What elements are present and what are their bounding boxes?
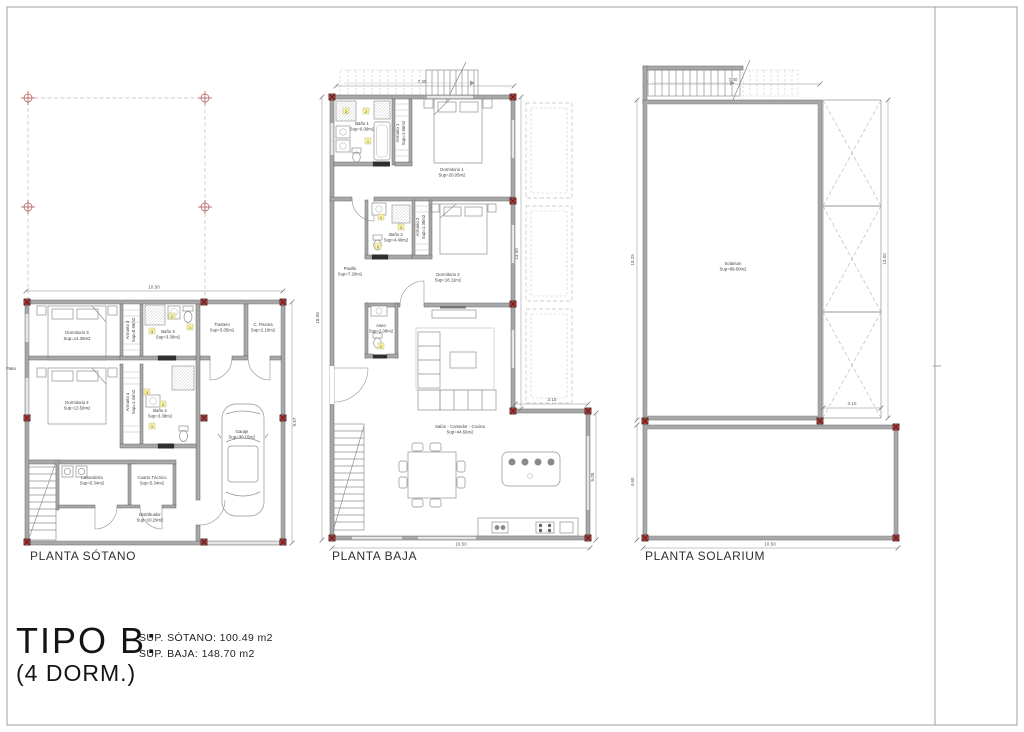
svg-text:10.50: 10.50 [764, 542, 776, 547]
pergola-panel [823, 100, 881, 418]
svg-text:2: 2 [365, 110, 367, 114]
dim-solarium-left: 13.25 [630, 98, 639, 423]
svg-text:13.25: 13.25 [630, 254, 635, 266]
svg-text:3: 3 [345, 110, 347, 114]
fixture-tag: 3 [144, 389, 150, 395]
plan-solarium: 7.40 [630, 60, 900, 550]
svg-text:3: 3 [146, 391, 148, 395]
room-label: Pasillo [344, 266, 357, 271]
room-label: Armario 4 [125, 392, 130, 411]
fixture-tag: 2 [169, 313, 175, 319]
fixture-tag: 1 [378, 214, 384, 220]
fixture-tag: 3 [343, 108, 349, 114]
fixture-tag: 2 [160, 401, 166, 407]
room-label: Baño 4 [153, 408, 167, 413]
svg-text:3.10: 3.10 [848, 401, 857, 406]
room-label: Sup=1.34m2 [131, 389, 136, 414]
column-marker-icon [817, 418, 823, 424]
grid-marker-icon [21, 200, 35, 214]
dim-baja-stair: 7.40 [334, 79, 517, 88]
kitchen-island-icon [502, 452, 560, 486]
dorm-count-label: (4 DORM.) [16, 660, 136, 687]
svg-text:3: 3 [151, 330, 153, 334]
fixture-tag: 1 [365, 138, 371, 144]
svg-text:10.50: 10.50 [148, 285, 160, 290]
plan-baja: 7.40 [315, 62, 598, 550]
svg-text:3: 3 [400, 226, 402, 230]
room-label: Armario 2 [415, 217, 420, 236]
dim-sotano-width: 10.50 [24, 285, 286, 294]
sofa-icon [416, 328, 496, 410]
svg-text:1: 1 [380, 216, 382, 220]
drawing-sheet: 10.50 [0, 0, 1024, 732]
room-label: Armario 3 [125, 320, 130, 339]
svg-text:13.00: 13.00 [514, 248, 519, 260]
svg-text:1: 1 [367, 140, 369, 144]
type-label: TIPO B: [16, 620, 158, 662]
room-label: Lavandería [81, 475, 103, 480]
solarium-walls [643, 66, 822, 420]
column-marker-icon [24, 299, 30, 305]
room-label: Solarium [725, 261, 742, 266]
terrace-walls [643, 425, 898, 540]
svg-text:13.00: 13.00 [882, 253, 887, 265]
room-label: Sup=13.58m2 [64, 406, 91, 411]
svg-text:1: 1 [189, 326, 191, 330]
room-label: Baño 1 [355, 121, 369, 126]
fixture-tag: 3 [398, 224, 404, 230]
plan-title-baja: PLANTA BAJA [332, 549, 417, 563]
room-label: Sup=7.20m2 [338, 272, 363, 277]
dim-solarium-right: 13.00 [882, 98, 890, 421]
room-label: Patio [6, 366, 16, 371]
baja-walls [330, 95, 590, 540]
room-label: Dormitorio 1 [440, 167, 464, 172]
room-labels-baja: Baño 1 Sup=6.09m2 Armario 1 Sup=1.56m2 D… [338, 120, 486, 434]
dim-sotano-height: 9.57 [290, 300, 297, 546]
room-label: Baño 3 [161, 329, 175, 334]
column-marker-icon [510, 408, 516, 414]
kitchen-counter-icon [478, 518, 578, 536]
column-marker-icon [893, 535, 899, 541]
fixture-tag: 2 [363, 108, 369, 114]
room-label: Distribuidor [139, 512, 161, 517]
fixture-tag: 1 [187, 324, 193, 330]
room-label: Dormitorio 3 [65, 330, 89, 335]
sup-sotano-label: SUP. SÓTANO: 100.49 m2 [139, 632, 273, 644]
column-marker-icon [24, 415, 30, 421]
room-label: Sup=5.34m2 [80, 481, 105, 486]
column-marker-icon [329, 94, 335, 100]
column-marker-icon [201, 539, 207, 545]
tv-unit-icon [432, 306, 476, 318]
svg-text:9.57: 9.57 [292, 417, 297, 426]
room-label: Sup=44.66m2 [447, 430, 474, 435]
svg-text:2: 2 [380, 345, 382, 349]
fixture-tag: 2 [375, 243, 381, 249]
column-marker-icon [585, 535, 591, 541]
stairs-icon [334, 424, 364, 530]
room-label: Sup=0.96m2 [131, 317, 136, 342]
bed-icon [431, 204, 496, 254]
svg-text:1: 1 [151, 425, 153, 429]
column-marker-icon [280, 299, 286, 305]
svg-text:18.06: 18.06 [315, 312, 320, 324]
svg-text:2: 2 [377, 245, 379, 249]
plan-title-solarium: PLANTA SOLARIUM [645, 549, 765, 563]
room-label: Dormitorio 4 [65, 400, 89, 405]
svg-text:7.40: 7.40 [729, 77, 738, 82]
baja-doors [334, 199, 424, 402]
sup-baja-label: SUP. BAJA: 148.70 m2 [139, 648, 255, 660]
room-label: Sup=2.08m2 [369, 329, 394, 334]
grid-marker-icon [198, 200, 212, 214]
pergola-projection [526, 103, 572, 403]
room-label: Sup=5.34m2 [140, 481, 165, 486]
svg-text:10.50: 10.50 [455, 542, 467, 547]
dim-baja-right: 13.00 [514, 95, 523, 412]
column-marker-icon [893, 424, 899, 430]
room-label: Sup=1.36m2 [421, 214, 426, 239]
fixture-tag: 1 [149, 423, 155, 429]
column-marker-icon [201, 415, 207, 421]
grid-marker-icon [21, 91, 35, 105]
room-label: Sup=2.19m2 [251, 328, 276, 333]
column-marker-icon [510, 94, 516, 100]
room-label: Sup=1.56m2 [401, 120, 406, 145]
column-marker-icon [329, 535, 335, 541]
svg-text:3.10: 3.10 [548, 397, 557, 402]
room-label: Cuarto Técnico [137, 475, 167, 480]
bed-icon [424, 99, 492, 163]
svg-text:5.05: 5.05 [590, 472, 595, 481]
plan-sotano: 10.50 [6, 91, 297, 545]
column-marker-icon [510, 301, 516, 307]
column-marker-icon [510, 198, 516, 204]
room-label: Sup=4.40m2 [384, 238, 409, 243]
fixture-tag: 2 [378, 343, 384, 349]
svg-text:2: 2 [171, 315, 173, 319]
column-marker-icon [280, 539, 286, 545]
column-marker-icon [642, 418, 648, 424]
column-marker-icon [24, 539, 30, 545]
column-marker-icon [201, 299, 207, 305]
dim-baja-left: 18.06 [315, 95, 324, 543]
room-label: Sup=18.11m2 [435, 278, 462, 283]
room-label: Garaje [236, 429, 250, 434]
room-label: Sup=30.15m2 [229, 435, 256, 440]
patio-outline [28, 98, 205, 305]
fixture-tag: 3 [149, 328, 155, 334]
room-label: Trastero [214, 322, 230, 327]
room-label: Dormitorio 2 [436, 272, 460, 277]
room-label: C. Piscina [253, 322, 273, 327]
column-marker-icon [642, 535, 648, 541]
svg-text:2: 2 [162, 403, 164, 407]
room-label: Sup=3.38m2 [148, 414, 173, 419]
room-label: Sup=6.09m2 [350, 127, 375, 132]
column-marker-icon [585, 408, 591, 414]
dim-baja-step: 3.10 [513, 397, 591, 406]
room-label: Sup=10.29m2 [137, 518, 164, 523]
room-label: Salón - Comedor - Cocina [435, 424, 485, 429]
room-label: Armario 1 [395, 123, 400, 142]
room-label: Baño 2 [389, 232, 403, 237]
room-label: Sup=14.39m2 [64, 336, 91, 341]
room-label: Sup=3.05m2 [210, 328, 235, 333]
coffee-table-icon [450, 352, 476, 368]
dim-baja-lower-right: 5.05 [590, 411, 598, 543]
grid-marker-icon [198, 91, 212, 105]
svg-text:4.60: 4.60 [630, 477, 635, 486]
dim-solarium-lower-left: 4.60 [630, 423, 639, 543]
room-label: Sup=89.60m2 [720, 267, 747, 272]
svg-text:7.40: 7.40 [418, 79, 427, 84]
dining-table-icon [399, 443, 465, 507]
dim-solarium-stair: 7.40 [643, 77, 823, 86]
room-label: Aseo [376, 323, 386, 328]
room-label: Sup=3.36m2 [156, 335, 181, 340]
room-label: Sup=20.05m2 [439, 173, 466, 178]
plan-title-sotano: PLANTA SÓTANO [30, 549, 136, 563]
column-marker-icon [280, 415, 286, 421]
